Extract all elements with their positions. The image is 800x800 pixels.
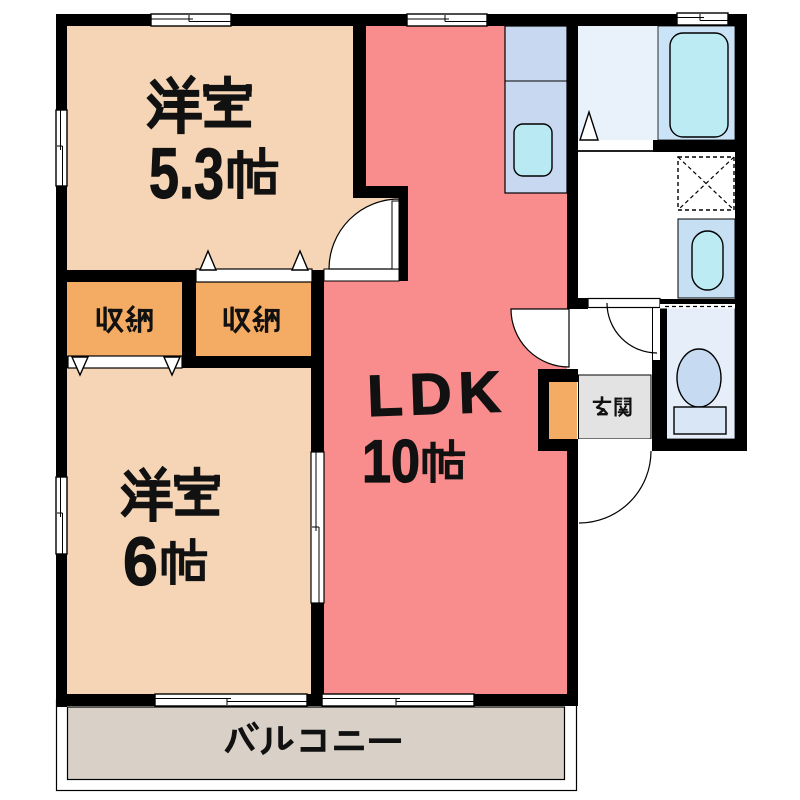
svg-text:10: 10 [362, 428, 420, 495]
svg-text:LDK: LDK [366, 359, 508, 429]
svg-text:6: 6 [123, 522, 158, 599]
svg-text:5.3: 5.3 [149, 135, 224, 214]
